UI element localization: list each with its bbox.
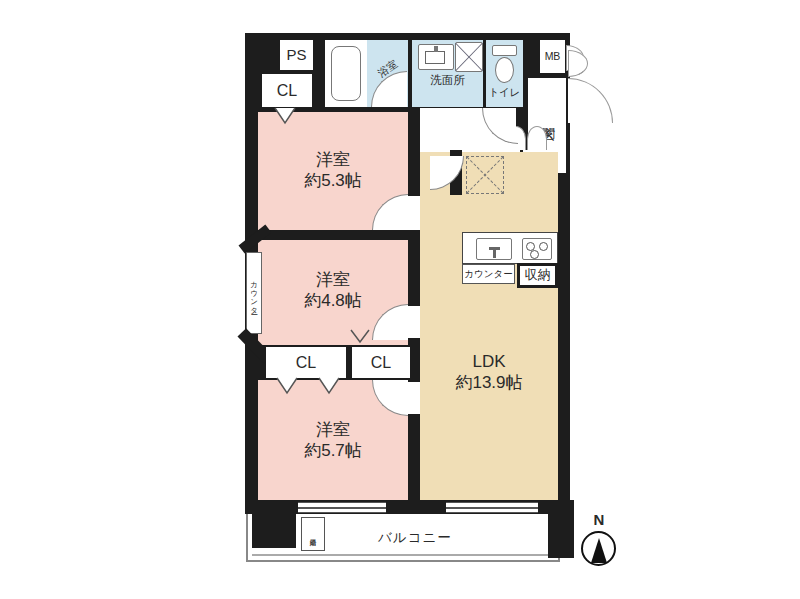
- water-heater-box: 給湯器: [301, 517, 325, 551]
- bedroom-3-size: 約5.7帖: [304, 440, 362, 461]
- washroom-label: 洗面所: [412, 70, 483, 90]
- toilet-tank-icon: [492, 45, 517, 56]
- bedroom-2-label: 洋室 約4.8帖: [283, 267, 383, 313]
- sink-icon: [418, 44, 454, 70]
- window: [298, 502, 386, 513]
- north-arrow-icon: [581, 531, 616, 566]
- storage-box: 収納: [517, 263, 558, 288]
- folding-door-mark: [274, 107, 296, 125]
- pipe-space-label: PS: [286, 46, 306, 65]
- refrigerator-space-icon: [466, 156, 504, 194]
- washing-machine-icon: [455, 42, 483, 72]
- toilet-bowl-icon: [495, 57, 514, 83]
- ldk-size: 約13.9帖: [455, 372, 522, 393]
- bathtub-icon: [331, 46, 361, 101]
- ldk-label: LDK 約13.9帖: [425, 349, 553, 395]
- folding-door-mark: [350, 329, 370, 344]
- window: [446, 502, 538, 513]
- kitchen-faucet: [493, 249, 496, 258]
- north-label: N: [588, 510, 610, 530]
- entrance-step-arc-right: [527, 126, 547, 152]
- kitchen-sink-icon: [476, 238, 512, 260]
- bedroom-1-name: 洋室: [316, 149, 350, 170]
- balcony-pillar-right: [548, 500, 574, 558]
- balcony-pillar-left: [252, 504, 296, 548]
- entry-door-small-arc: [568, 50, 588, 77]
- bedroom-3-label: 洋室 約5.7帖: [283, 417, 383, 463]
- entry-door-arc: [568, 78, 613, 123]
- closet-top-label: CL: [277, 81, 297, 101]
- kitchen-faucet-spout: [489, 247, 500, 250]
- bedroom-1-size: 約5.3帖: [304, 170, 362, 191]
- side-counter: カウンター: [246, 252, 262, 334]
- bedroom-2-door-opening: [408, 306, 420, 338]
- floor-plan: PS CL 浴室 洗面所 トイレ MB 玄関: [0, 0, 800, 599]
- stove-icon: [522, 238, 552, 260]
- bedroom-2-size: 約4.8帖: [304, 290, 362, 311]
- bedroom-2-name: 洋室: [316, 269, 350, 290]
- kitchen-counter-label-box: カウンター: [462, 264, 515, 284]
- closet-left-box: CL: [266, 347, 346, 378]
- closet-right-box: CL: [352, 347, 410, 378]
- bedroom-1-door-opening: [408, 196, 420, 230]
- pipe-space-box: PS: [280, 40, 313, 70]
- sink-basin: [425, 51, 445, 64]
- bedroom-3-name: 洋室: [316, 419, 350, 440]
- sink-faucet: [434, 46, 438, 52]
- balcony-inner-line: [252, 554, 554, 556]
- folding-door-mark: [276, 377, 298, 395]
- meter-box: MB: [540, 40, 565, 73]
- bedroom-1-label: 洋室 約5.3帖: [283, 147, 383, 193]
- closet-top-box: CL: [262, 74, 312, 107]
- balcony-label: バルコニー: [370, 528, 460, 548]
- toilet-label: トイレ: [484, 84, 525, 102]
- folding-door-mark: [318, 377, 340, 395]
- room-ldk: [420, 152, 558, 500]
- bedroom-3-door-opening: [408, 382, 420, 414]
- ldk-name: LDK: [472, 351, 505, 372]
